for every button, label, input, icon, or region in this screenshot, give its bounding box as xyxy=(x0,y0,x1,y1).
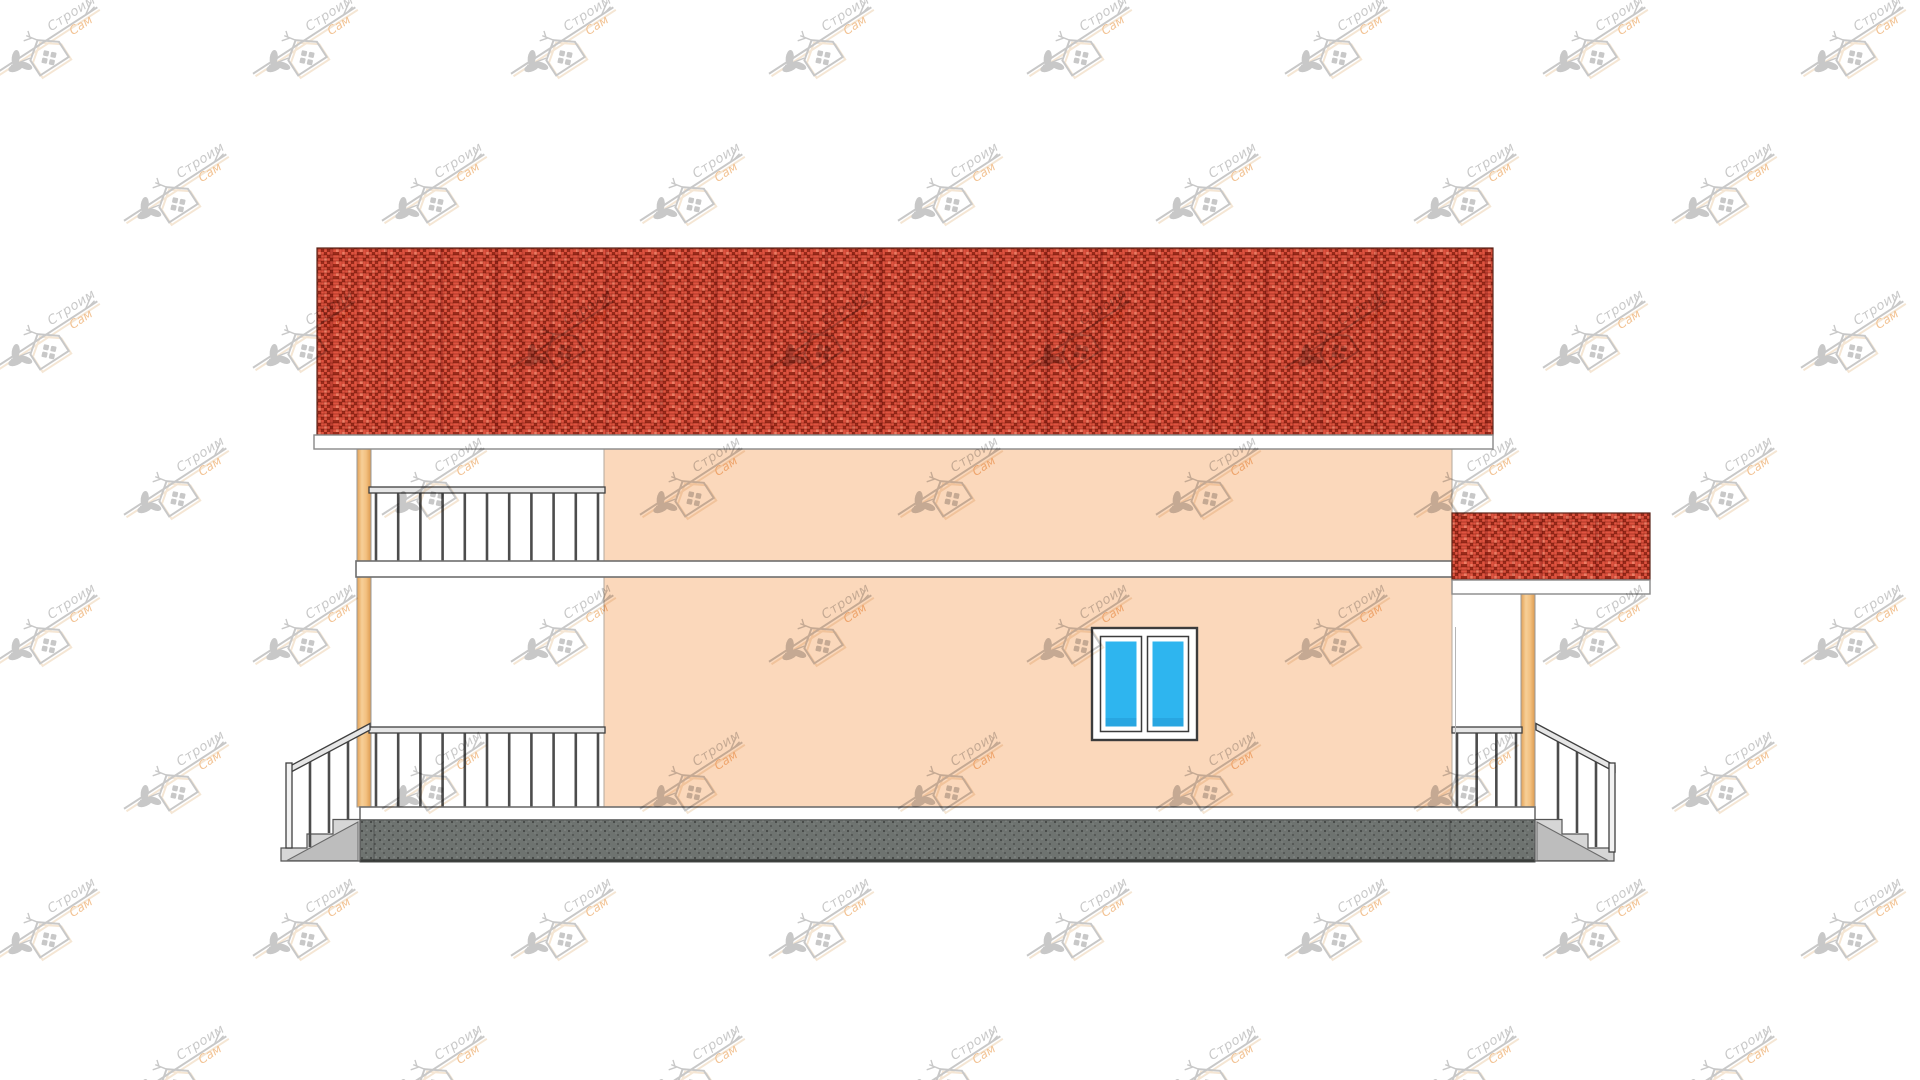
porch-roof xyxy=(1452,513,1650,594)
window-left-glass-shade xyxy=(1106,718,1137,727)
porch-roof-fascia xyxy=(1452,580,1650,594)
window xyxy=(1092,628,1197,740)
ground-floor-slab xyxy=(360,807,1535,820)
ground-floor-wall xyxy=(604,577,1452,807)
window-right-glass xyxy=(1153,642,1184,727)
right-stair-stringer xyxy=(1537,822,1608,861)
right-stair-handrail xyxy=(1536,724,1615,773)
balcony-railing xyxy=(369,487,605,561)
right-porch-handrail xyxy=(1452,727,1522,733)
right-porch-railing xyxy=(1452,727,1522,807)
main-roof xyxy=(314,248,1493,449)
main-roof-fascia xyxy=(314,435,1493,449)
window-right-glass-shade xyxy=(1153,718,1184,727)
balcony-handrail xyxy=(369,487,605,493)
left-porch-handrail xyxy=(369,727,605,733)
right-porch-post xyxy=(1521,594,1535,807)
right-stair-end-post xyxy=(1609,763,1615,852)
balcony-floor-slab xyxy=(356,561,1452,577)
left-wood-post xyxy=(357,449,371,807)
left-stair-end-post xyxy=(286,763,292,848)
house-elevation-svg xyxy=(0,0,1920,1080)
left-porch-railing xyxy=(369,727,605,807)
left-stair-stringer xyxy=(287,822,358,861)
right-stairs xyxy=(1535,724,1615,862)
upper-floor-wall xyxy=(604,449,1452,562)
foundation xyxy=(360,820,1535,862)
window-left-glass xyxy=(1106,642,1137,727)
elevation-drawing: House side elevation drawing (architectu… xyxy=(0,0,1920,1080)
